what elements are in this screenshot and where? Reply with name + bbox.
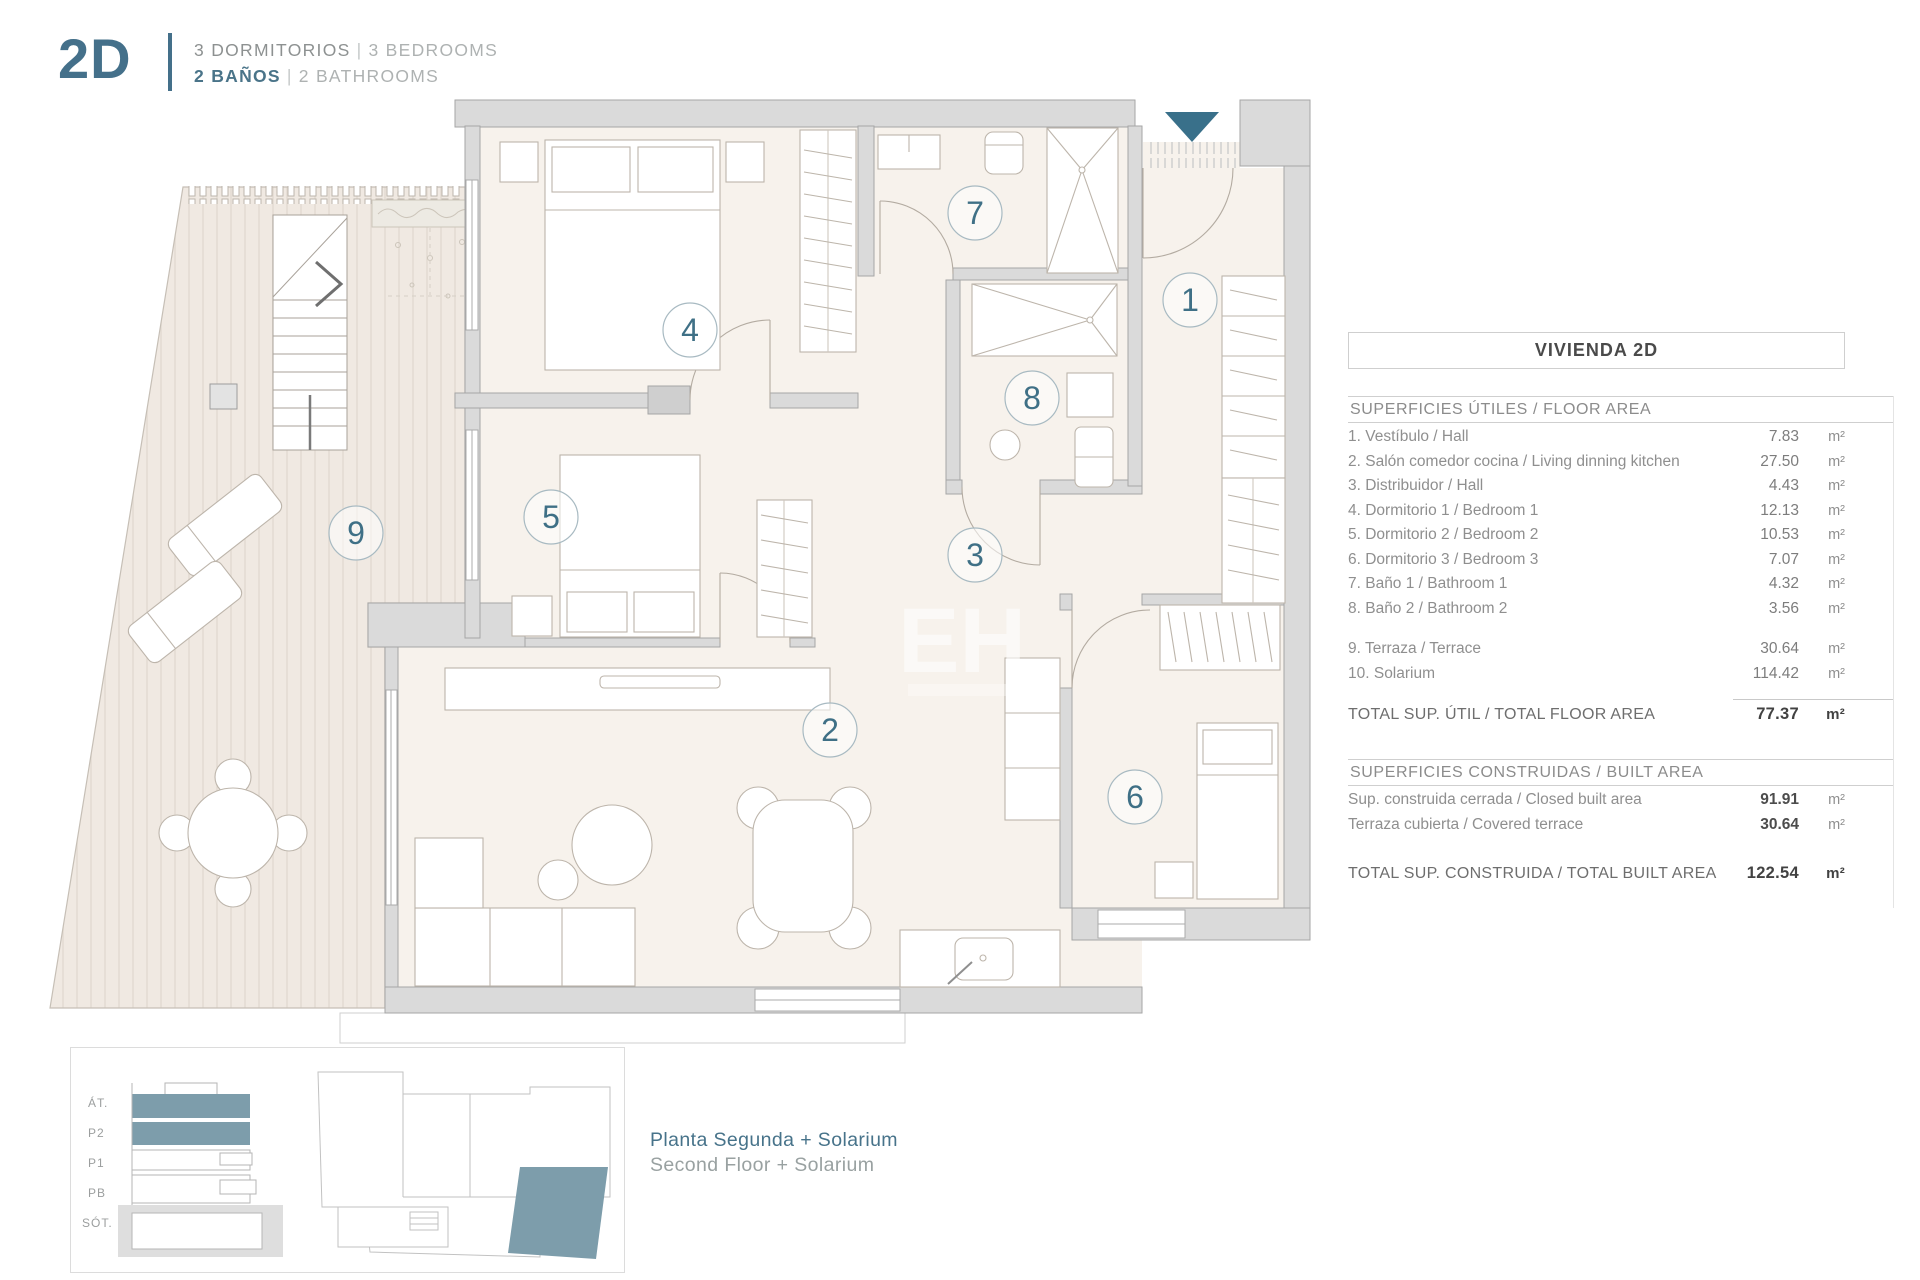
floor-area-rows: 1. Vestíbulo / Hall7.83m²2. Salón comedo…	[1348, 423, 1893, 624]
bedrooms-en: 3 BEDROOMS	[368, 40, 498, 60]
bathroom2-shower	[972, 284, 1117, 356]
room-circle-5: 5	[524, 490, 578, 544]
room-circle-8: 8	[1005, 371, 1059, 425]
svg-text:9: 9	[347, 515, 365, 551]
area-row: 1. Vestíbulo / Hall7.83m²	[1348, 428, 1893, 453]
bathroom1-toilet	[985, 132, 1023, 174]
hall-wardrobe-upper	[1222, 276, 1285, 478]
table-right-rule	[1893, 396, 1894, 908]
svg-text:2: 2	[821, 712, 839, 748]
outdoor-area-rows: 9. Terraza / Terrace30.64m²10. Solarium1…	[1348, 640, 1893, 689]
living-bottom-window	[755, 989, 900, 1011]
svg-text:P1: P1	[88, 1156, 105, 1170]
sideboard	[445, 668, 830, 710]
svg-text:8: 8	[1023, 380, 1041, 416]
room-circle-3: 3	[948, 528, 1002, 582]
area-row: 8. Baño 2 / Bathroom 23.56m²	[1348, 600, 1893, 625]
svg-text:SÓT.: SÓT.	[82, 1215, 113, 1230]
floor-area-heading: SUPERFICIES ÚTILES / FLOOR AREA	[1348, 397, 1893, 422]
living-side-window	[386, 690, 397, 905]
header-room-summary: 3 DORMITORIOS|3 BEDROOMS 2 BAÑOS|2 BATHR…	[194, 37, 498, 89]
wardrobe-bedroom3	[1160, 605, 1280, 670]
header-divider-bar	[168, 33, 172, 91]
bathroom1-shower	[1047, 128, 1118, 273]
area-row: 10. Solarium114.42m²	[1348, 665, 1893, 690]
svg-text:3: 3	[966, 537, 984, 573]
room-circle-2: 2	[803, 703, 857, 757]
built-area-heading: SUPERFICIES CONSTRUIDAS / BUILT AREA	[1348, 760, 1893, 785]
svg-text:4: 4	[681, 312, 699, 348]
wardrobe-bedroom1	[800, 130, 856, 352]
bathroom2-sink	[1075, 427, 1113, 487]
svg-text:EH: EH	[898, 590, 1026, 692]
area-row: 3. Distribuidor / Hall4.43m²	[1348, 477, 1893, 502]
highlighted-unit	[508, 1167, 608, 1259]
svg-text:1: 1	[1181, 282, 1199, 318]
entrance-arrow-icon	[1165, 112, 1219, 142]
room-circle-1: 1	[1163, 273, 1217, 327]
area-row: 4. Dormitorio 1 / Bedroom 112.13m²	[1348, 502, 1893, 527]
table-title: VIVIENDA 2D	[1348, 332, 1845, 369]
unit-code: 2D	[58, 26, 132, 91]
bathroom1-sink	[878, 135, 940, 169]
stairs	[273, 215, 347, 450]
area-table: VIVIENDA 2D SUPERFICIES ÚTILES / FLOOR A…	[1348, 332, 1893, 892]
svg-text:7: 7	[966, 195, 984, 231]
svg-text:PB: PB	[88, 1186, 106, 1200]
terrace-step-edge	[340, 1013, 905, 1043]
bedrooms-line: 3 DORMITORIOS|3 BEDROOMS	[194, 37, 498, 63]
room-circle-7: 7	[948, 186, 1002, 240]
bedroom2-window	[466, 430, 478, 580]
entrance-threshold-hatch	[1145, 142, 1240, 168]
bathrooms-en: 2 BATHROOMS	[299, 66, 439, 86]
caption-es: Planta Segunda + Solarium	[650, 1128, 898, 1153]
room-circle-4: 4	[663, 303, 717, 357]
site-key-plan	[318, 1072, 610, 1259]
kitchen-counter	[900, 930, 1060, 987]
built-area-rows: Sup. construida cerrada / Closed built a…	[1348, 786, 1893, 840]
area-row: 6. Dormitorio 3 / Bedroom 37.07m²	[1348, 551, 1893, 576]
bedrooms-es: 3 DORMITORIOS	[194, 40, 351, 60]
bathroom2-washer	[1067, 373, 1113, 417]
bedroom3-window	[1098, 910, 1185, 938]
bathrooms-es: 2 BAÑOS	[194, 66, 281, 86]
area-row: Sup. construida cerrada / Closed built a…	[1348, 791, 1893, 816]
bedroom1-window	[466, 180, 478, 330]
area-row: 7. Baño 1 / Bathroom 14.32m²	[1348, 575, 1893, 600]
dining-set	[737, 787, 871, 949]
svg-text:5: 5	[542, 499, 560, 535]
total-floor-area-row: TOTAL SUP. ÚTIL / TOTAL FLOOR AREA 77.37…	[1348, 705, 1893, 733]
svg-text:ÁT.: ÁT.	[88, 1095, 108, 1110]
watermark-logo: EH	[898, 590, 1026, 696]
locator-diagram: ÁT. P2 P1 PB SÓT.	[71, 1048, 625, 1273]
area-row: 9. Terraza / Terrace30.64m²	[1348, 640, 1893, 665]
wardrobe-bedroom2	[757, 500, 812, 637]
total-built-area-row: TOTAL SUP. CONSTRUIDA / TOTAL BUILT AREA…	[1348, 864, 1893, 892]
svg-text:6: 6	[1126, 779, 1144, 815]
terrace-column	[210, 384, 237, 409]
area-row: 5. Dormitorio 2 / Bedroom 210.53m²	[1348, 526, 1893, 551]
plan-caption: Planta Segunda + Solarium Second Floor +…	[650, 1128, 898, 1178]
room-circle-9: 9	[329, 506, 383, 560]
area-row: Terraza cubierta / Covered terrace30.64m…	[1348, 816, 1893, 841]
hall-wardrobe-lower	[1222, 478, 1285, 603]
bathrooms-line: 2 BAÑOS|2 BATHROOMS	[194, 63, 498, 89]
bathroom2-toilet	[990, 430, 1020, 460]
svg-text:P2: P2	[88, 1126, 105, 1140]
caption-en: Second Floor + Solarium	[650, 1153, 898, 1178]
room-circle-6: 6	[1108, 770, 1162, 824]
area-row: 2. Salón comedor cocina / Living dinning…	[1348, 453, 1893, 478]
